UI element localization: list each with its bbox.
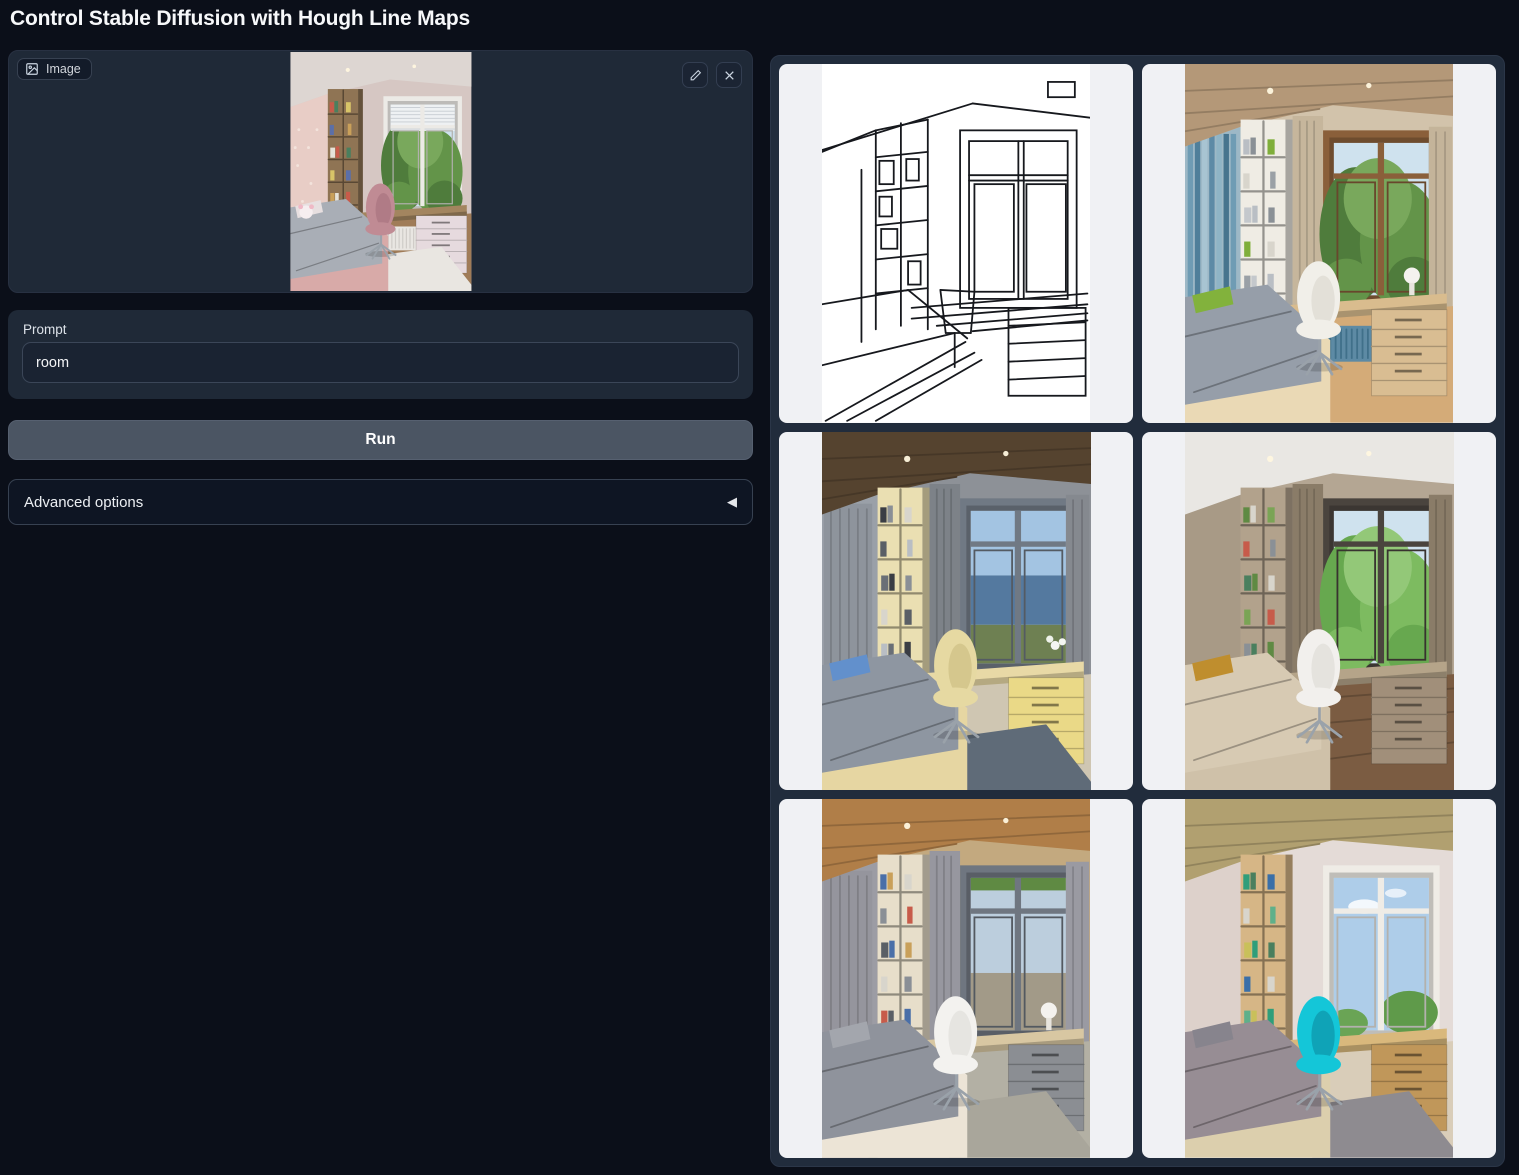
gallery-item-line-map[interactable] — [779, 64, 1133, 423]
pencil-icon — [689, 69, 702, 82]
advanced-options-accordion[interactable]: Advanced options ◀ — [8, 479, 753, 525]
generated-image-1 — [1185, 64, 1454, 423]
image-icon — [25, 62, 39, 76]
uploaded-room-photo — [290, 52, 471, 291]
gallery-item-4[interactable] — [779, 799, 1133, 1158]
gallery-item-3[interactable] — [1142, 432, 1496, 791]
uploaded-image[interactable] — [290, 52, 471, 291]
close-icon — [723, 69, 736, 82]
generated-image-2 — [822, 432, 1091, 791]
advanced-options-label: Advanced options — [24, 494, 143, 511]
page-title: Control Stable Diffusion with Hough Line… — [10, 7, 470, 31]
hough-line-map-image — [822, 64, 1091, 423]
image-label: Image — [46, 62, 81, 76]
gallery-item-1[interactable] — [1142, 64, 1496, 423]
output-gallery — [770, 55, 1505, 1167]
edit-image-button[interactable] — [682, 62, 708, 88]
generated-image-4 — [822, 799, 1091, 1158]
generated-image-3 — [1185, 432, 1454, 791]
run-button[interactable]: Run — [8, 420, 753, 460]
clear-image-button[interactable] — [716, 62, 742, 88]
prompt-panel: Prompt — [8, 310, 753, 399]
prompt-label: Prompt — [23, 322, 67, 337]
accordion-collapse-icon: ◀ — [727, 494, 737, 510]
gallery-item-2[interactable] — [779, 432, 1133, 791]
image-label-badge: Image — [17, 58, 92, 80]
generated-image-5 — [1185, 799, 1454, 1158]
prompt-input[interactable] — [22, 342, 739, 383]
image-upload-component: Image — [8, 50, 753, 293]
gallery-item-5[interactable] — [1142, 799, 1496, 1158]
